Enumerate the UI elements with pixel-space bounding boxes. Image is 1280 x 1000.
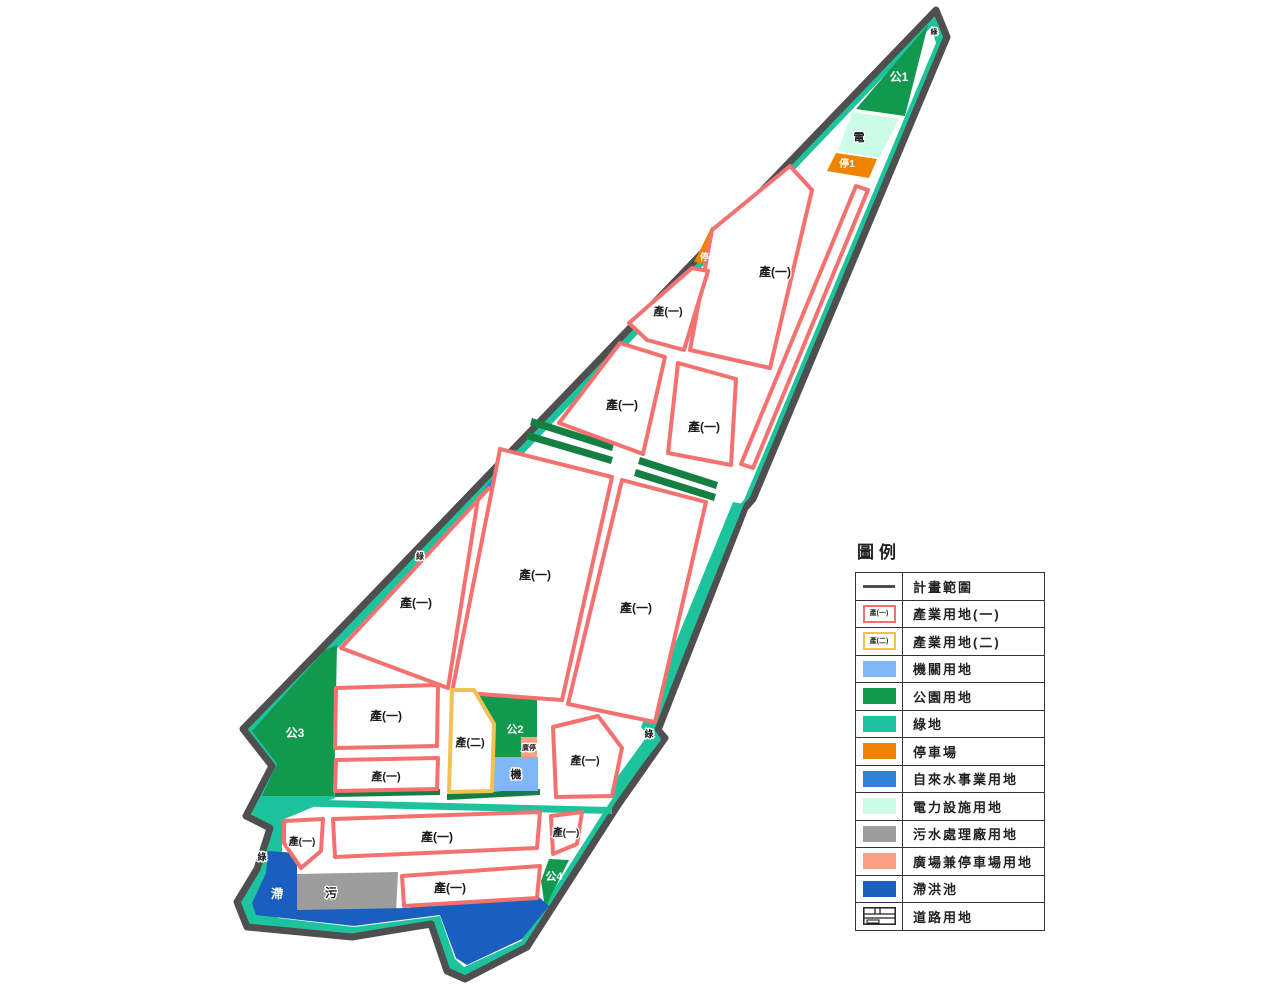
legend-row-6: 停車場	[856, 738, 1044, 766]
legend-swatch-road	[856, 903, 903, 930]
legend-row-11: 滯洪池	[856, 876, 1044, 904]
zone-label-parking-1: 停1	[839, 157, 855, 170]
zone-label-ind1-l: 產(一)	[420, 829, 453, 844]
legend-swatch-fill	[856, 711, 903, 738]
zoning-map: 綠公1電停1停2產(一)產(一)產(一)產(一)水綠產(一)產(一)產(一)公3…	[0, 0, 1280, 1000]
zone-label-ind1-d: 產(一)	[687, 419, 720, 434]
legend-row-0: 計畫範圍	[856, 573, 1044, 601]
legend-swatch-fill	[856, 683, 903, 710]
legend-row-3: 機關用地	[856, 656, 1044, 684]
legend-swatch-line	[856, 573, 903, 600]
legend-table: 計畫範圍產(一)產業用地(一)產(二)產業用地(二)機關用地公園用地綠地停車場自…	[855, 572, 1045, 931]
legend-swatch-fill	[856, 656, 903, 683]
legend-swatch-fill	[856, 848, 903, 875]
legend-label: 污水處理廠用地	[903, 821, 1044, 848]
zone-label-ind1-e: 產(一)	[518, 567, 551, 582]
zone-label-ind1-n: 產(一)	[433, 880, 466, 895]
zone-label-ind1-k: 產(一)	[288, 835, 316, 848]
legend-row-4: 公園用地	[856, 683, 1044, 711]
zone-label-green-tip: 綠	[931, 27, 939, 36]
legend-label: 停車場	[903, 738, 1044, 765]
legend-title: 圖例	[857, 538, 1055, 563]
zone-label-park-3: 公3	[286, 726, 305, 740]
zone-label-ind1-c: 產(一)	[605, 397, 638, 412]
zone-label-ind1-j: 產(一)	[569, 753, 600, 767]
legend-label: 產業用地(二)	[903, 628, 1044, 655]
legend-row-1: 產(一)產業用地(一)	[856, 601, 1044, 629]
zone-label-power: 電	[854, 131, 865, 144]
sewage-plant-zone	[296, 872, 398, 913]
zone-label-ind1-h: 產(一)	[369, 708, 402, 723]
legend-label: 公園用地	[903, 683, 1044, 710]
legend-label: 綠地	[903, 711, 1044, 738]
zone-label-ind2: 產(二)	[454, 735, 485, 749]
zone-label-green-right: 綠	[644, 728, 654, 739]
zone-label-ind1-f: 產(一)	[619, 600, 652, 615]
legend-label: 電力設施用地	[903, 793, 1044, 820]
zone-label-detention: 滯	[271, 886, 283, 901]
legend-swatch-fill	[856, 738, 903, 765]
zone-label-ind1-b: 產(一)	[652, 304, 683, 318]
legend-row-7: 自來水事業用地	[856, 766, 1044, 794]
legend-label: 機關用地	[903, 656, 1044, 683]
legend-row-10: 廣場兼停車場用地	[856, 848, 1044, 876]
legend-label: 道路用地	[903, 903, 1044, 930]
legend-row-2: 產(二)產業用地(二)	[856, 628, 1044, 656]
zone-label-ind1-i: 產(一)	[370, 769, 401, 783]
legend-swatch-fill	[856, 793, 903, 820]
zone-label-ind1-a: 產(一)	[758, 264, 791, 279]
zone-label-water: 水	[501, 478, 513, 492]
zone-label-park-1: 公1	[890, 70, 909, 84]
zone-label-parking-2: 停2	[700, 251, 714, 262]
legend-label: 廣場兼停車場用地	[903, 848, 1044, 875]
legend-label: 計畫範圍	[903, 573, 1044, 600]
legend-swatch-parcel2: 產(二)	[856, 628, 903, 655]
zone-label-ind1-g: 產(一)	[399, 595, 432, 610]
zone-label-institution: 機	[511, 767, 522, 781]
legend-row-12: 道路用地	[856, 903, 1044, 930]
legend-swatch-fill	[856, 766, 903, 793]
zone-label-plaza-parking: 廣停	[521, 743, 536, 752]
industrial-1-parcel	[668, 363, 736, 465]
legend-row-5: 綠地	[856, 711, 1044, 739]
legend-swatch-parcel1: 產(一)	[856, 601, 903, 628]
zone-label-park-4: 公4	[545, 870, 563, 883]
legend-label: 自來水事業用地	[903, 766, 1044, 793]
zone-label-green-bottom: 綠	[257, 851, 267, 862]
plan-map-canvas: 綠公1電停1停2產(一)產(一)產(一)產(一)水綠產(一)產(一)產(一)公3…	[0, 0, 1280, 1000]
zone-label-green-left: 綠	[416, 551, 425, 561]
legend-label: 產業用地(一)	[903, 601, 1044, 628]
zone-label-ind1-m: 產(一)	[552, 826, 580, 839]
zone-label-park-2: 公2	[506, 723, 523, 736]
zone-label-sewage: 污	[325, 885, 337, 900]
legend-row-9: 污水處理廠用地	[856, 821, 1044, 849]
legend-label: 滯洪池	[903, 876, 1044, 903]
legend-swatch-fill	[856, 876, 903, 903]
legend-row-8: 電力設施用地	[856, 793, 1044, 821]
legend-swatch-fill	[856, 821, 903, 848]
legend: 圖例 計畫範圍產(一)產業用地(一)產(二)產業用地(二)機關用地公園用地綠地停…	[855, 538, 1055, 931]
